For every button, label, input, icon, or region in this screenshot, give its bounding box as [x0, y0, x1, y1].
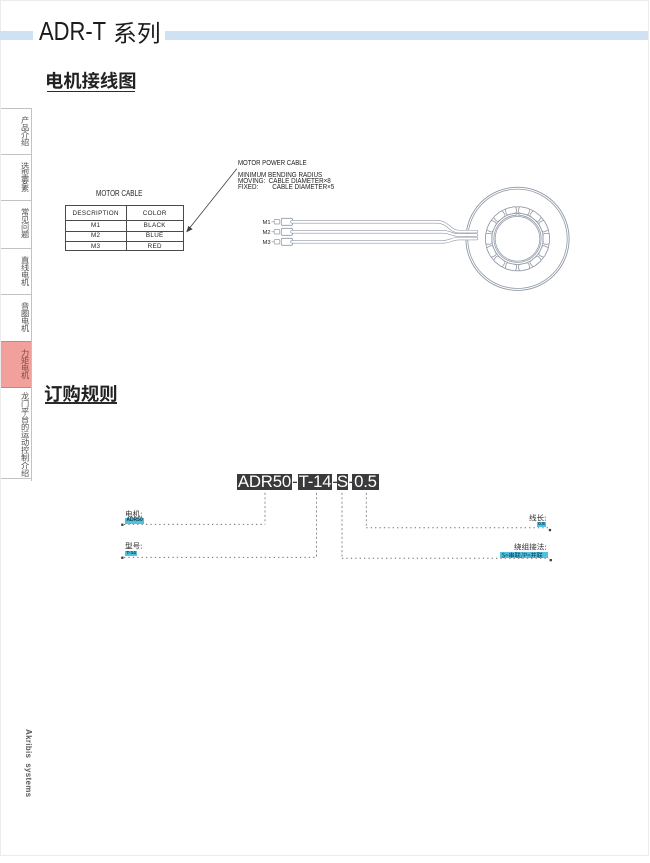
svg-text:M1: M1: [263, 220, 271, 226]
svg-text:M2: M2: [263, 230, 271, 236]
svg-text:M3: M3: [263, 240, 271, 246]
